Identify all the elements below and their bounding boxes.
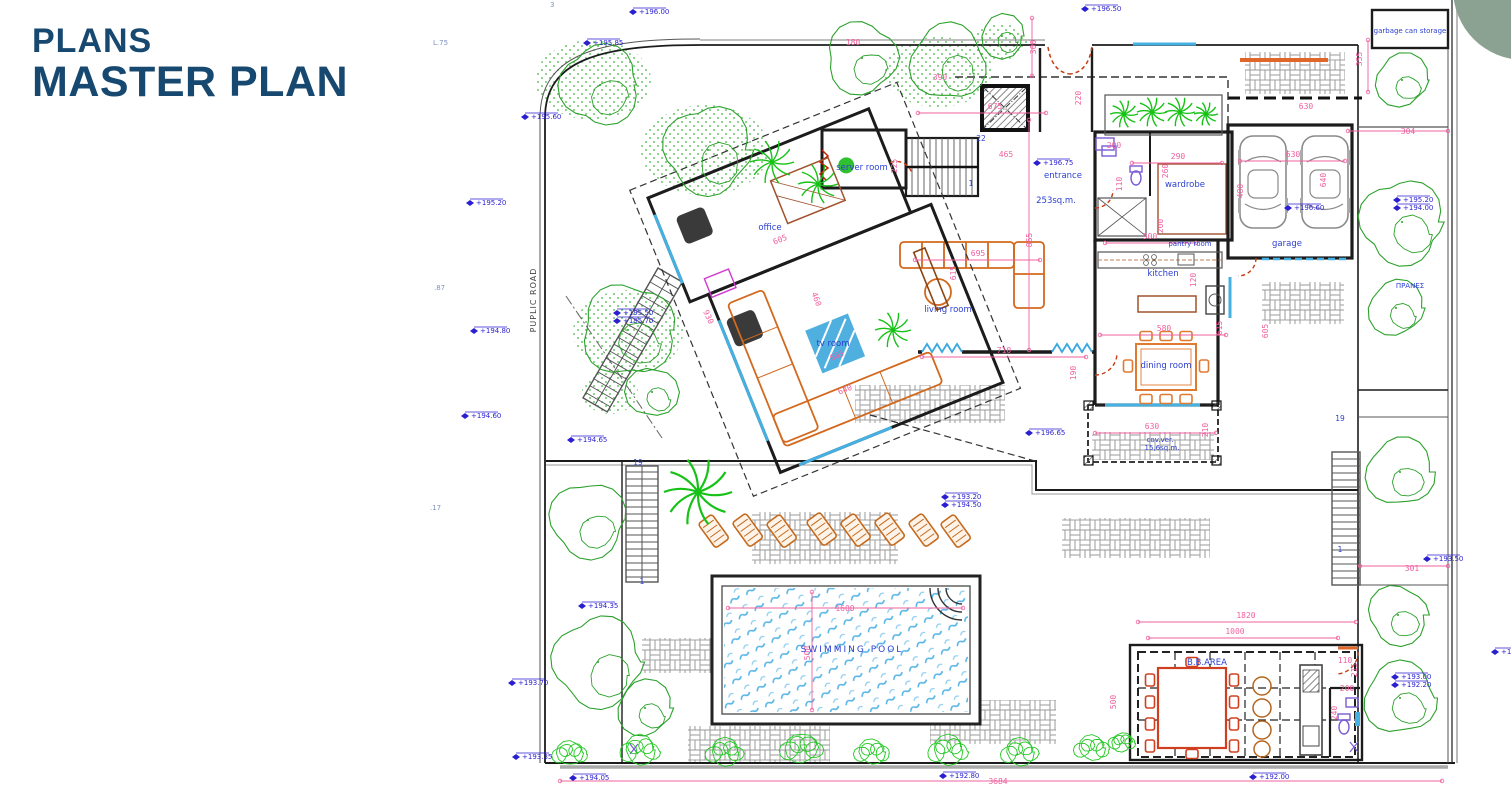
dimension-label: 200 [1107,141,1122,150]
shrub-blob [556,741,583,765]
palm-tree [1194,103,1218,126]
stairs-left [626,466,658,582]
palm-center [1204,112,1208,116]
dimension-label: 301 [1405,564,1420,573]
elevation-marker: +195.20 [1393,196,1433,204]
elevation-marker: +194.35 [578,602,618,610]
shrub-blob [1000,746,1017,763]
dimension-label: 675 [988,102,1003,111]
elevation-label: +195.50 [623,309,653,317]
page-title: PLANS MASTER PLAN [32,24,348,105]
elevation-flag-icon [567,437,575,443]
tree-inner [1392,469,1424,496]
palm-leaf [875,328,893,330]
elevation-label: +195.20 [476,199,506,207]
elevation-marker: +192.80 [939,772,979,780]
tree-center [947,61,949,63]
elevation-label: +193.20 [951,493,981,501]
elevation-flag-icon [578,603,586,609]
elevation-flag-icon [1025,430,1033,436]
palm-center [1122,112,1126,116]
dimension-label: 180 [846,38,861,47]
dimension-label: 465 [999,150,1014,159]
palm-leaf [1110,113,1124,114]
tree [1358,181,1444,266]
tree-center [1001,35,1003,37]
tree-center [644,707,646,709]
elevation-label: +192.80 [949,772,979,780]
elevation-marker: +192.20 [1391,681,1431,689]
shrub [620,734,661,765]
room-label: SWIMMING POOL [801,645,904,655]
tree-canopy [1368,586,1429,647]
stair-count-label: 19 [633,458,643,467]
dimension-label: 260 [1161,164,1170,179]
elevation-label: +194.00 [1403,204,1433,212]
dimension-label: 695 [971,249,986,258]
elevation-marker: +194.00 [1393,204,1433,212]
elevation-marker: +193.35 [512,753,552,761]
elevation-marker: +194.65 [567,436,607,444]
dimension-label: 120 [1189,273,1198,288]
palm-center [696,490,700,494]
elevation-label: +195.70 [623,317,653,325]
elevation-flag-icon [1491,649,1499,655]
margin-note: .17 [430,504,441,512]
dimension-label: 615 [1215,321,1224,336]
palm-leaf [772,162,794,164]
elevation-flag-icon [941,502,949,508]
stair-count-label: 19 [1335,414,1345,423]
tree-canopy [549,485,626,560]
tree-inner [580,516,616,548]
elevation-label: +194.65 [577,436,607,444]
tree-center [1399,471,1401,473]
elevation-marker: +193.20 [941,493,981,501]
elevation-label: +194.80 [480,327,510,335]
palm-leaf [1165,111,1180,112]
stair-count-label: 1 [969,179,974,188]
room-label: pantry room [1168,240,1211,248]
tree-inner [591,655,629,697]
dimension-label: 605 [772,233,789,247]
palm-tree [798,165,838,203]
elevation-label: +194.35 [588,602,618,610]
shrub [552,741,588,765]
tree-center [1397,614,1399,616]
palm-leaf [1180,112,1195,113]
room-label: entrance [1044,171,1082,181]
dimension-label: 390 [933,73,948,82]
room-label: living room [924,305,972,315]
dimension-line [1346,129,1450,133]
palm-leaf [1168,112,1180,121]
dimension-label: 630 [1286,150,1301,159]
dimension-label: 580 [1157,324,1172,333]
palm-leaf [812,184,818,203]
tree-inner [1391,612,1419,636]
dimension-label: 930 [701,309,715,326]
elevation-marker: +194.50 [941,501,981,509]
dimension-line [1136,620,1358,624]
dimension-label: 480 [1236,184,1245,199]
room-label: office [758,223,781,233]
dimension-label: 605 [1261,324,1270,339]
elevation-flag-icon [521,114,529,120]
room-label: wardrobe [1165,180,1205,190]
tree-center [627,329,629,331]
elevation-label: +194.05 [579,774,609,782]
elevation-flag-icon [1081,6,1089,12]
palm-leaf [1113,114,1124,122]
dimension-label: 1600 [835,604,854,613]
dimension-line [1366,38,1370,94]
palm-tree [1110,101,1138,128]
elevation-marker: +196.50 [1081,5,1121,13]
room-label: tv room [816,339,849,349]
palm-leaf [893,330,911,332]
tree-center [587,519,589,521]
palm-leaf [1137,111,1152,112]
margin-note: 3 [550,1,554,9]
shrub [1073,735,1109,761]
room-label: garage [1272,239,1302,249]
stair-count-label: 1 [640,577,645,586]
palm-tree [875,313,911,347]
palm-leaf [818,184,838,186]
dimension-label: 355 [1355,52,1364,67]
tree-inner [1396,77,1422,99]
tree-canopy [618,679,674,736]
elevation-label: +195.20 [1403,196,1433,204]
site-plan-drawing: 6751803902254653002208656956156059306056… [0,0,1511,787]
palm-leaf [1124,106,1135,114]
dimension-label: 630 [1145,422,1160,431]
elevation-marker: +196.00 [629,8,669,16]
dimension-label: 3684 [988,777,1007,786]
room-label: kitchen [1147,269,1178,279]
tree-inner [639,704,665,728]
palm-leaf [798,182,818,184]
palm-leaf [878,330,893,341]
dimension-label: 200 [1156,219,1165,234]
elevation-label: +193.50 [1433,555,1463,563]
room-label: server room [836,163,888,173]
dimension-line [1146,636,1340,640]
palm-leaf [765,162,772,183]
tree-inner [1394,215,1432,253]
elevation-label: +193.70 [518,679,548,687]
elevation-marker: +196.65 [1025,429,1065,437]
title-line-master-plan: MASTER PLAN [32,60,348,105]
tree [549,485,626,560]
palm-leaf [670,492,698,512]
elevation-marker: +194.80 [470,327,510,335]
stairs-entrance [906,138,978,196]
shrub [853,739,889,764]
public-road-label: PUPLIC ROAD [529,268,538,333]
dimension-label: 190 [1069,366,1078,381]
hedge-layer [535,24,1028,414]
elevation-flag-icon [629,9,637,15]
palm-leaf [664,489,698,492]
stair-count-label: 22 [976,134,986,143]
dimension-label: 1000 [1225,627,1244,636]
dimension-label: 110 [1115,177,1124,192]
room-label: garbage can storage [1374,27,1447,35]
tree-inner [854,55,888,84]
elevation-flag-icon [1033,160,1041,166]
elevation-flag-icon [470,328,478,334]
elevation-marker: +193.00 [1391,673,1431,681]
palm-leaf [812,165,818,184]
elevation-flag-icon [1423,556,1431,562]
palm-leaf [687,492,698,524]
elevation-label: +196.50 [1091,5,1121,13]
elevation-label: +192.20 [1401,681,1431,689]
palm-leaf [698,472,726,492]
palm-center [1178,110,1182,114]
tree-inner [1390,304,1416,329]
dimension-label: 215 [1350,663,1359,678]
elevation-label: +193.00 [1401,673,1431,681]
tree-center [1399,697,1401,699]
elevation-label: +196.75 [1043,159,1073,167]
elevation-label: +192.00 [1259,773,1289,781]
dimension-label: 615 [949,266,958,281]
tree [1375,53,1429,107]
elevation-marker: +195.60 [521,113,561,121]
palm-leaf [1124,114,1138,115]
elevation-marker: +196.75 [1033,159,1073,167]
palm-leaf [1152,103,1164,112]
palm-leaf [698,492,732,495]
palm-tree [1137,98,1167,127]
elevation-label: +196.60 [1294,204,1324,212]
palm-leaf [893,319,908,330]
elevation-marker: +193.70 [508,679,548,687]
tree [618,679,674,736]
palm-center [770,160,774,164]
tree [1364,660,1437,732]
elevation-label: +194.60 [471,412,501,420]
palm-leaf [1140,112,1152,121]
elevation-label: +196.65 [1035,429,1065,437]
stair-count-label: 1 [1338,545,1343,554]
elevation-marker: +196.60 [1284,204,1324,212]
shrub-blob [928,743,945,762]
dimension-label: 240 [1330,706,1339,721]
dimension-label: 225 [890,159,899,174]
elevation-flag-icon [1249,774,1257,780]
tree-center [1395,307,1397,309]
palm-leaf [1180,103,1192,112]
stairs-right [1332,452,1360,585]
elevation-flag-icon [512,754,520,760]
elevation-label: +19 [1501,648,1511,656]
dimension-label: 300 [1029,40,1038,55]
elevation-flag-icon [939,773,947,779]
room-label: cov.ver. [1147,436,1174,444]
tree-center [1401,79,1403,81]
elevation-flag-icon [466,200,474,206]
margin-note: .87 [434,284,445,292]
title-line-plans: PLANS [32,24,348,60]
margin-note: L.75 [433,39,448,47]
elevation-marker: +19 [1491,648,1511,656]
palm-leaf [772,149,790,162]
elevation-flag-icon [569,775,577,781]
palm-tree [664,460,732,525]
tree-center [599,84,601,86]
shrub [1108,733,1136,752]
dimension-label: 640 [1319,173,1328,188]
elevation-flag-icon [461,413,469,419]
elevation-label: +193.35 [522,753,552,761]
dimension-label: 500 [1109,695,1118,710]
tree-center [597,661,599,663]
elevation-label: +196.00 [639,8,669,16]
dimension-line [920,355,1088,359]
elevation-flag-icon [508,680,516,686]
room-label: B.B.AREA [1187,658,1227,668]
tree-canopy [1358,181,1444,266]
palm-center [1150,110,1154,114]
dimension-label: 290 [1171,152,1186,161]
dimension-line [913,258,1042,262]
elevation-label: +195.85 [593,39,623,47]
tree [551,616,645,710]
dimension-label: 710 [997,346,1012,355]
dimension-label: 200 [1340,684,1355,693]
palm-center [891,328,895,332]
tree-center [861,57,863,59]
dimension-label: 1820 [1236,611,1255,620]
room-label: dining room [1141,361,1192,371]
dimension-label: 304 [1401,127,1416,136]
tree-center [1401,221,1403,223]
dimension-label: 220 [1074,91,1083,106]
elevation-marker: +192.00 [1249,773,1289,781]
dimension-label: 640 [837,383,854,397]
dimension-label: 210 [1201,423,1210,438]
elevation-marker: +195.20 [466,199,506,207]
elevation-flag-icon [941,494,949,500]
dimension-label: 630 [1299,102,1314,111]
dimension-label: 460 [810,291,823,308]
tree [1368,586,1429,647]
tree-center [707,149,709,151]
elevation-flag-icon [1393,205,1401,211]
tree [1365,437,1435,502]
room-label: ΠΡΑΝΕΣ [1396,282,1424,290]
tree-inner [647,388,671,411]
elevation-label: +194.50 [951,501,981,509]
kitchen-furniture [1098,252,1224,314]
elevation-marker: +194.60 [461,412,501,420]
room-label: 15,6sq.m. [1145,444,1180,452]
elevation-marker: +193.50 [1423,555,1463,563]
palm-leaf [1152,112,1167,113]
elevation-flag-icon [1393,197,1401,203]
palm-center [816,182,820,186]
palm-tree [1165,98,1195,127]
tree-center [651,391,653,393]
dimension-label: 865 [1025,233,1034,248]
bbq-area [1130,645,1362,760]
dimension-label: 500 [1143,232,1158,241]
elevation-flag-icon [1391,674,1399,680]
room-label: 253sq.m. [1036,196,1076,206]
tree-inner [1392,693,1426,724]
elevation-flag-icon [1391,682,1399,688]
elevation-label: +195.60 [531,113,561,121]
